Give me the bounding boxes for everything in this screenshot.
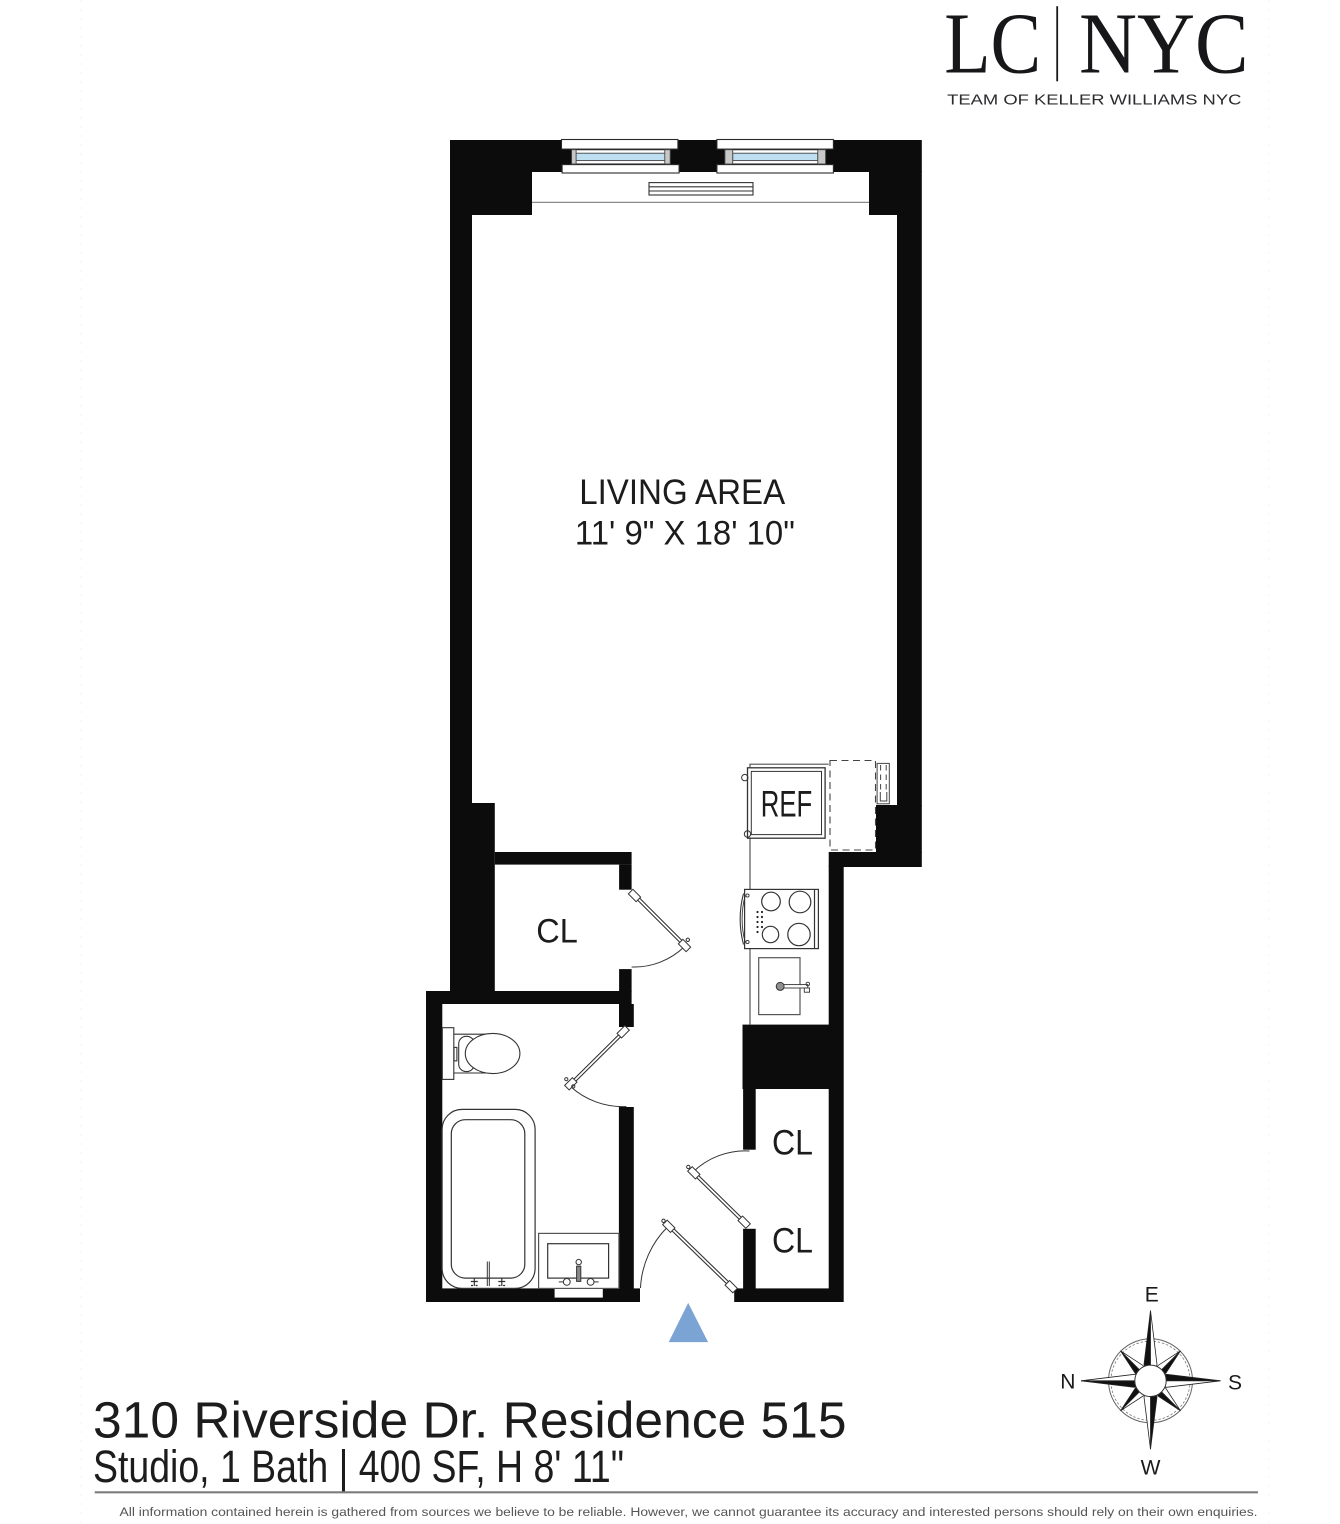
svg-text:LIVING AREA: LIVING AREA [579, 473, 786, 512]
svg-text:S: S [1228, 1371, 1242, 1394]
svg-text:11' 9" X 18' 10": 11' 9" X 18' 10" [575, 515, 795, 553]
svg-text:CL: CL [772, 1222, 813, 1261]
svg-text:CL: CL [772, 1124, 813, 1163]
svg-text:Studio, 1 Bath | 400 SF, H 8': Studio, 1 Bath | 400 SF, H 8' 11" [93, 1441, 624, 1492]
svg-text:E: E [1145, 1284, 1159, 1307]
svg-text:All information contained here: All information contained herein is gath… [120, 1505, 1258, 1519]
svg-text:LC: LC [944, 0, 1041, 92]
svg-text:310 Riverside Dr. Residence 51: 310 Riverside Dr. Residence 515 [93, 1392, 847, 1449]
svg-text:W: W [1141, 1456, 1161, 1479]
svg-text:CL: CL [536, 912, 578, 950]
svg-text:N: N [1060, 1370, 1075, 1393]
svg-text:REF: REF [761, 784, 812, 825]
svg-text:TEAM OF KELLER WILLIAMS NYC: TEAM OF KELLER WILLIAMS NYC [947, 93, 1241, 109]
svg-text:NYC: NYC [1079, 0, 1249, 92]
